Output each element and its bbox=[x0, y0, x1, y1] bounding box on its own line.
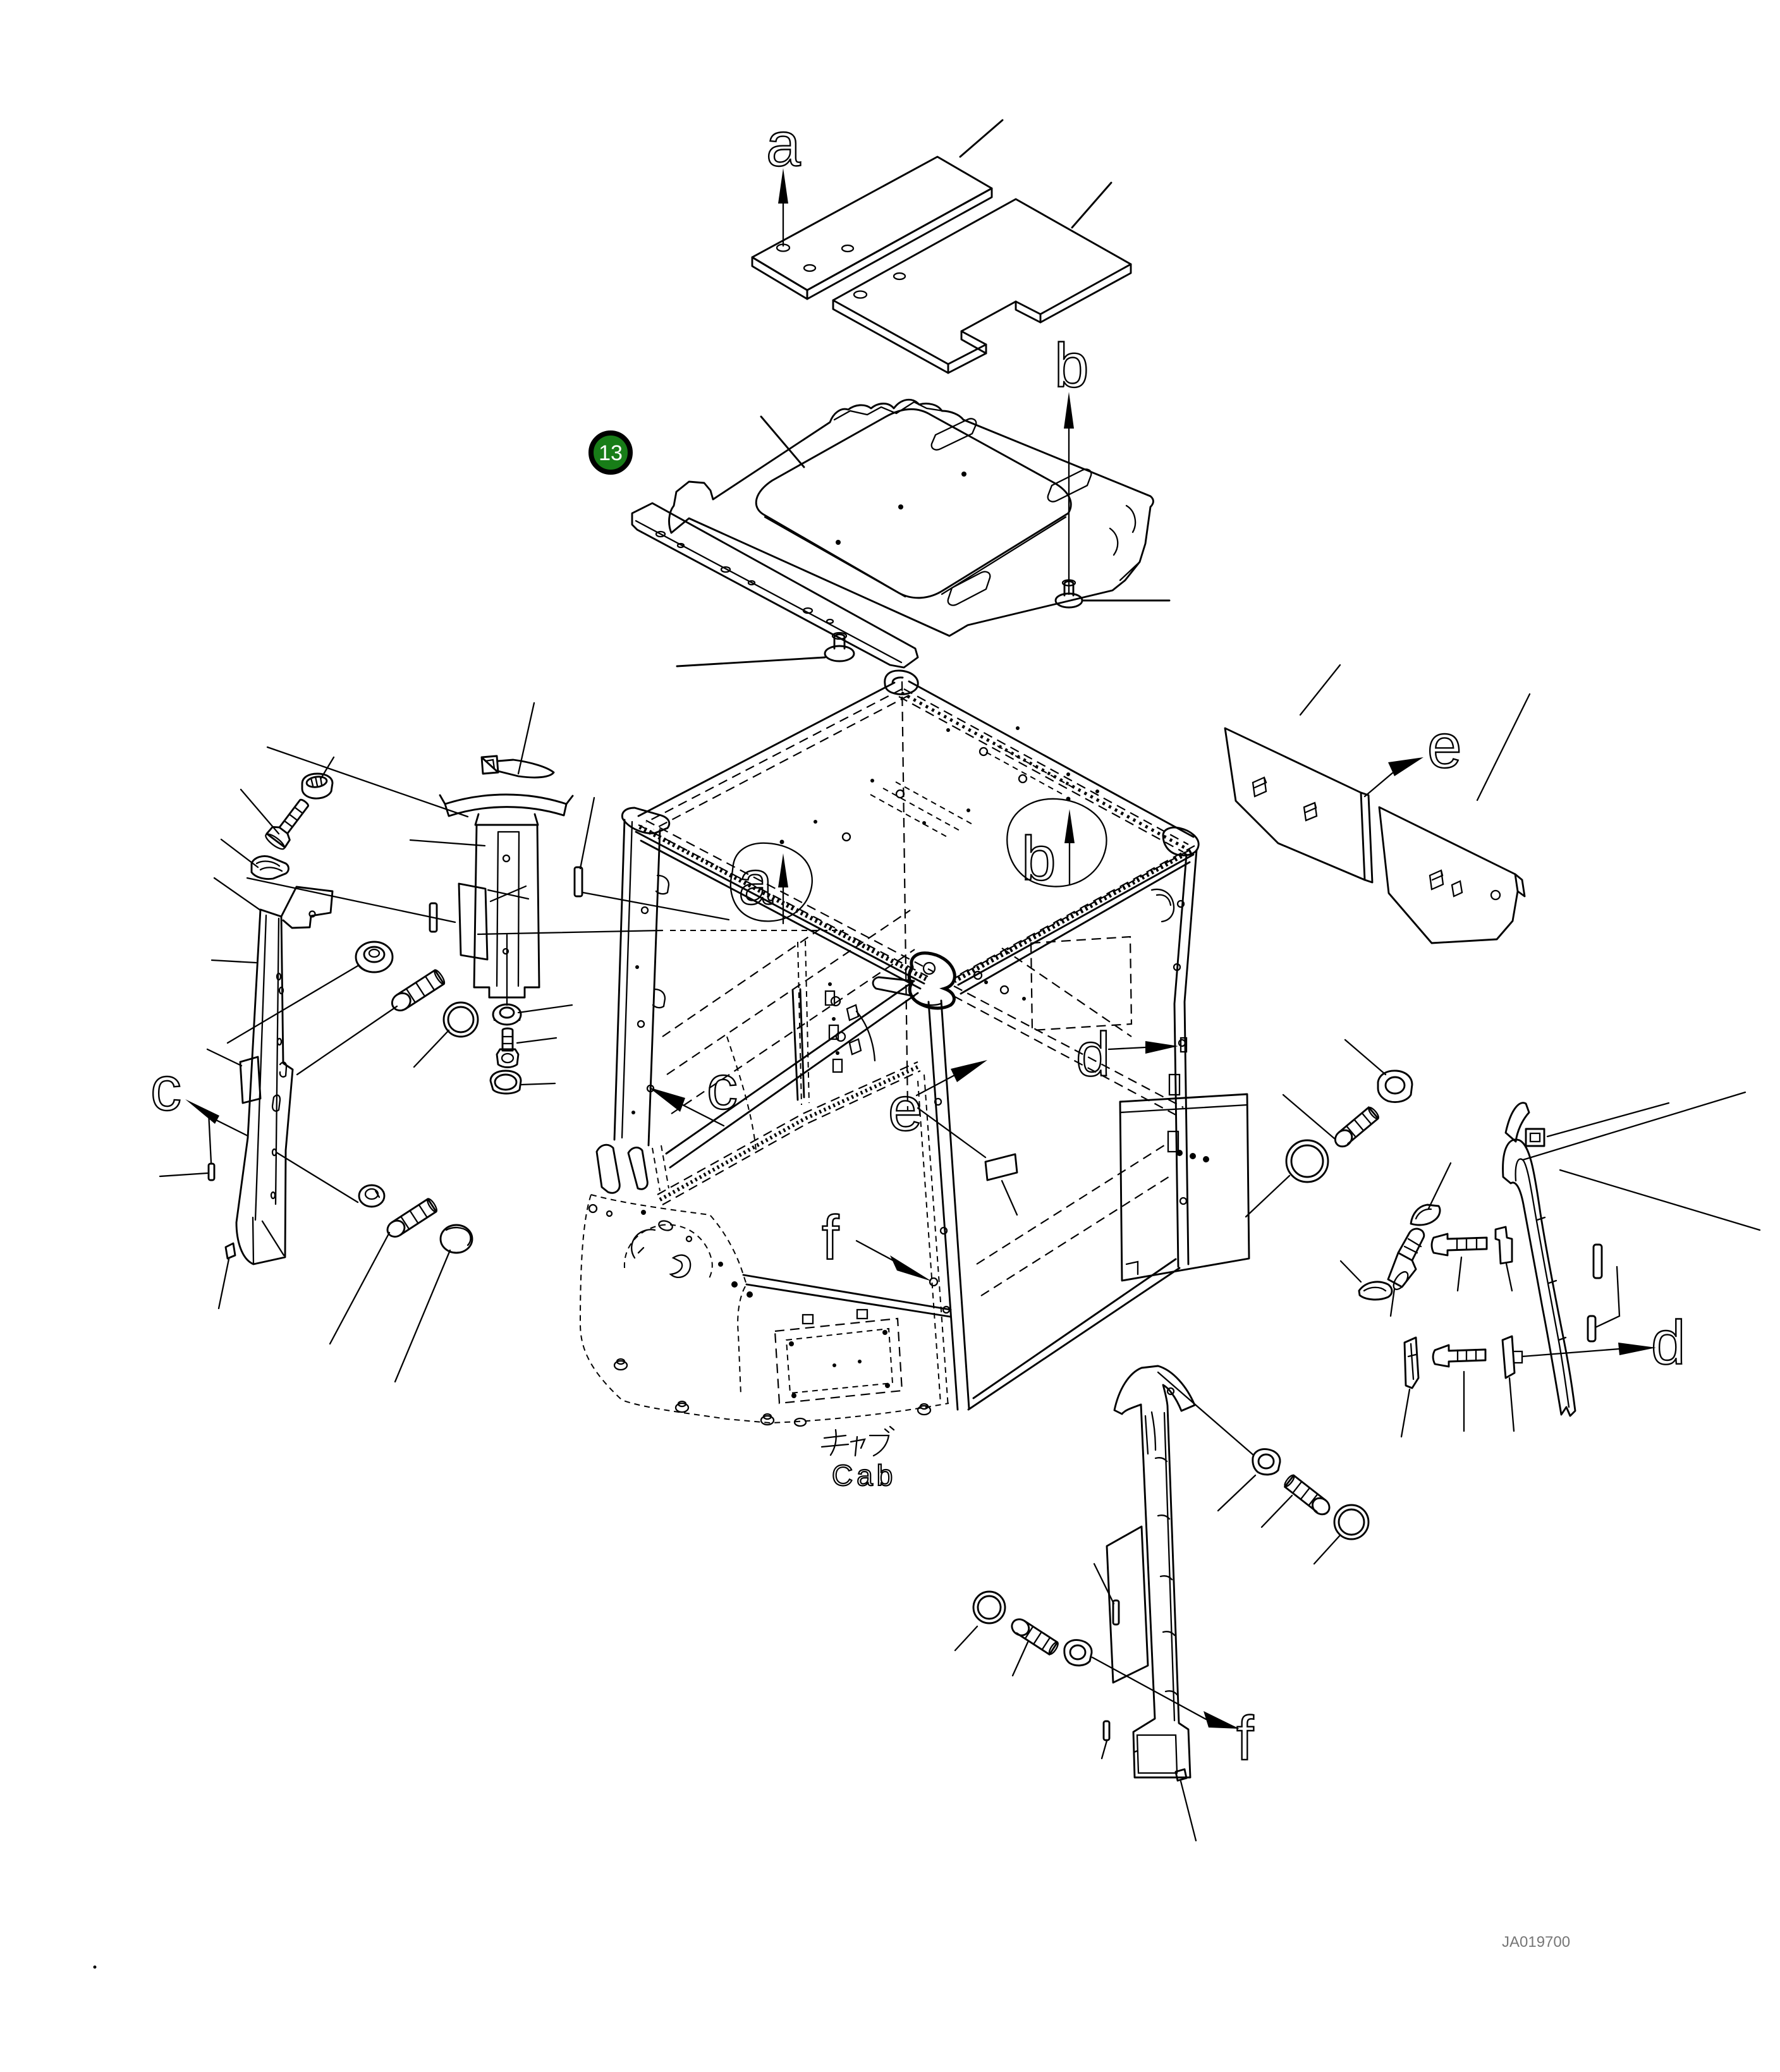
svg-text:d: d bbox=[1076, 1020, 1111, 1089]
svg-text:Cab: Cab bbox=[832, 1459, 896, 1492]
svg-text:a: a bbox=[766, 109, 801, 179]
svg-text:e: e bbox=[888, 1074, 923, 1143]
svg-text:c: c bbox=[150, 1054, 181, 1123]
svg-text:e: e bbox=[1427, 711, 1462, 781]
svg-text:c: c bbox=[707, 1052, 738, 1122]
svg-text:13: 13 bbox=[599, 441, 623, 465]
svg-text:a: a bbox=[738, 848, 773, 917]
svg-text:b: b bbox=[1021, 824, 1056, 893]
svg-text:d: d bbox=[1651, 1308, 1686, 1377]
svg-text:f: f bbox=[1236, 1703, 1254, 1773]
svg-text:f: f bbox=[822, 1203, 839, 1272]
svg-text:JA019700: JA019700 bbox=[1502, 1934, 1570, 1951]
svg-text:b: b bbox=[1054, 331, 1089, 400]
